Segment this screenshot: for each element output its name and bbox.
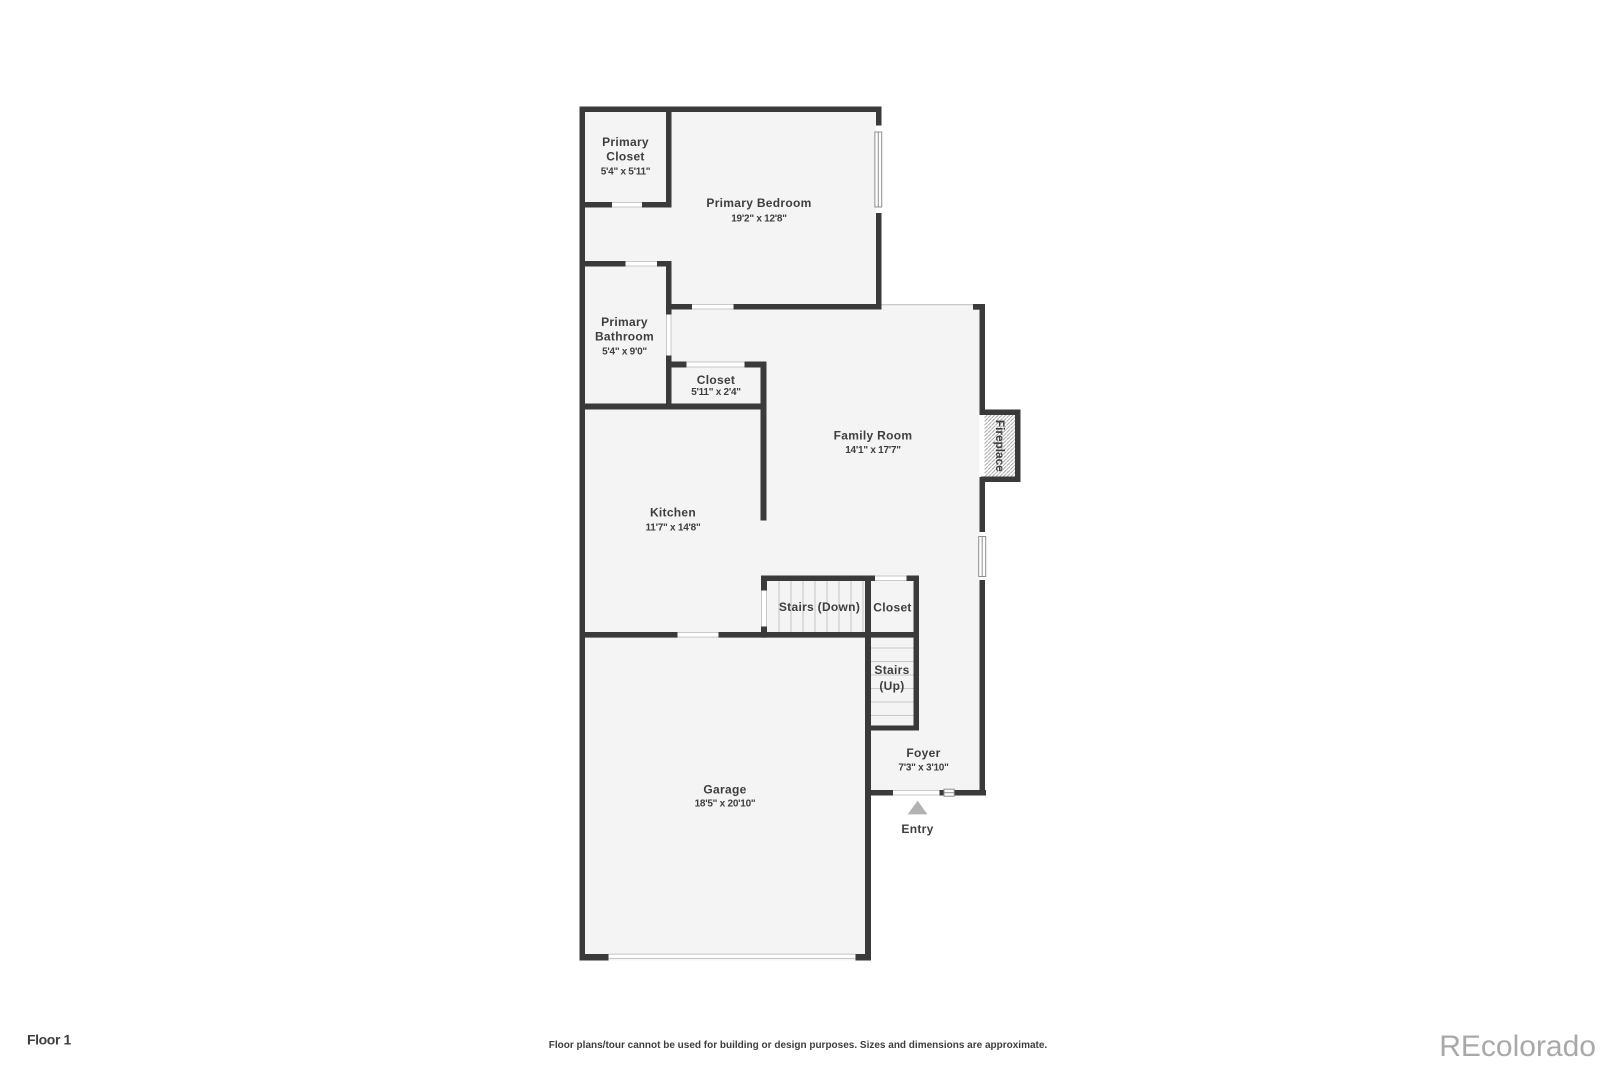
svg-text:Stairs (Down): Stairs (Down) <box>779 600 860 614</box>
svg-text:Stairs: Stairs <box>874 663 909 677</box>
svg-text:Foyer: Foyer <box>906 746 940 760</box>
svg-text:Primary Bedroom: Primary Bedroom <box>706 196 811 210</box>
svg-text:Primary: Primary <box>601 315 648 329</box>
svg-text:Floor 1: Floor 1 <box>27 1032 71 1048</box>
svg-text:7'3" x 3'10": 7'3" x 3'10" <box>898 763 949 774</box>
svg-text:5'11" x 2'4": 5'11" x 2'4" <box>691 387 741 398</box>
svg-text:Kitchen: Kitchen <box>650 506 696 520</box>
svg-text:5'4" x 9'0": 5'4" x 9'0" <box>602 347 647 358</box>
svg-text:Closet: Closet <box>873 601 911 615</box>
svg-text:19'2" x 12'8": 19'2" x 12'8" <box>731 213 787 224</box>
svg-text:Floor plans/tour cannot be use: Floor plans/tour cannot be used for buil… <box>549 1040 1048 1051</box>
svg-text:18'5" x 20'10": 18'5" x 20'10" <box>695 798 756 809</box>
svg-text:Closet: Closet <box>606 150 644 164</box>
svg-text:Bathroom: Bathroom <box>595 329 654 343</box>
svg-text:Closet: Closet <box>697 373 735 387</box>
svg-text:(Up): (Up) <box>879 679 904 693</box>
svg-text:REcolorado: REcolorado <box>1439 1030 1596 1063</box>
svg-text:11'7" x 14'8": 11'7" x 14'8" <box>646 522 701 533</box>
svg-text:14'1" x 17'7": 14'1" x 17'7" <box>845 445 901 456</box>
svg-text:Garage: Garage <box>703 783 746 797</box>
svg-text:Family Room: Family Room <box>834 428 913 442</box>
svg-text:Fireplace: Fireplace <box>993 420 1007 472</box>
svg-text:5'4" x 5'11": 5'4" x 5'11" <box>601 167 651 178</box>
svg-text:Primary: Primary <box>602 135 649 149</box>
svg-text:Entry: Entry <box>901 822 933 836</box>
